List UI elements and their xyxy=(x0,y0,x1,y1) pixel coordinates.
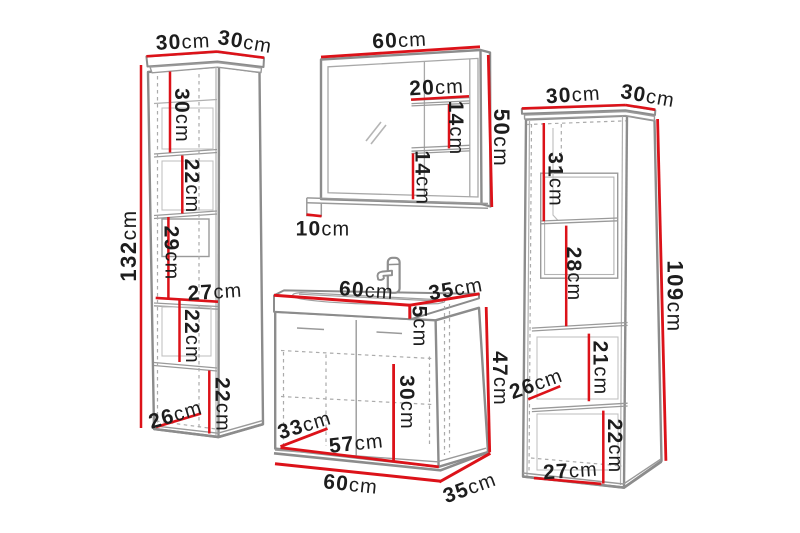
svg-text:14cm: 14cm xyxy=(444,101,467,156)
svg-text:22cm: 22cm xyxy=(603,419,626,474)
svg-text:30cm: 30cm xyxy=(395,375,418,430)
svg-text:109cm: 109cm xyxy=(662,260,687,332)
svg-text:47cm: 47cm xyxy=(488,351,511,406)
svg-text:10cm: 10cm xyxy=(296,218,351,241)
svg-text:132cm: 132cm xyxy=(116,209,141,281)
svg-text:22cm: 22cm xyxy=(211,377,234,432)
svg-text:27cm: 27cm xyxy=(187,279,243,306)
svg-text:20cm: 20cm xyxy=(409,75,465,101)
svg-text:60cm: 60cm xyxy=(338,277,394,304)
svg-text:30cm: 30cm xyxy=(155,29,211,55)
svg-text:31cm: 31cm xyxy=(544,152,567,207)
svg-text:22cm: 22cm xyxy=(180,159,203,214)
svg-text:28cm: 28cm xyxy=(562,247,585,302)
svg-text:21cm: 21cm xyxy=(589,341,612,396)
svg-text:30cm: 30cm xyxy=(170,88,193,143)
svg-text:22cm: 22cm xyxy=(180,309,203,364)
svg-text:14cm: 14cm xyxy=(411,150,434,205)
svg-text:5cm: 5cm xyxy=(408,306,431,348)
svg-text:50cm: 50cm xyxy=(489,109,514,167)
svg-text:60cm: 60cm xyxy=(372,28,428,54)
svg-text:30cm: 30cm xyxy=(545,82,601,109)
svg-text:29cm: 29cm xyxy=(160,226,183,281)
svg-text:27cm: 27cm xyxy=(542,458,598,485)
